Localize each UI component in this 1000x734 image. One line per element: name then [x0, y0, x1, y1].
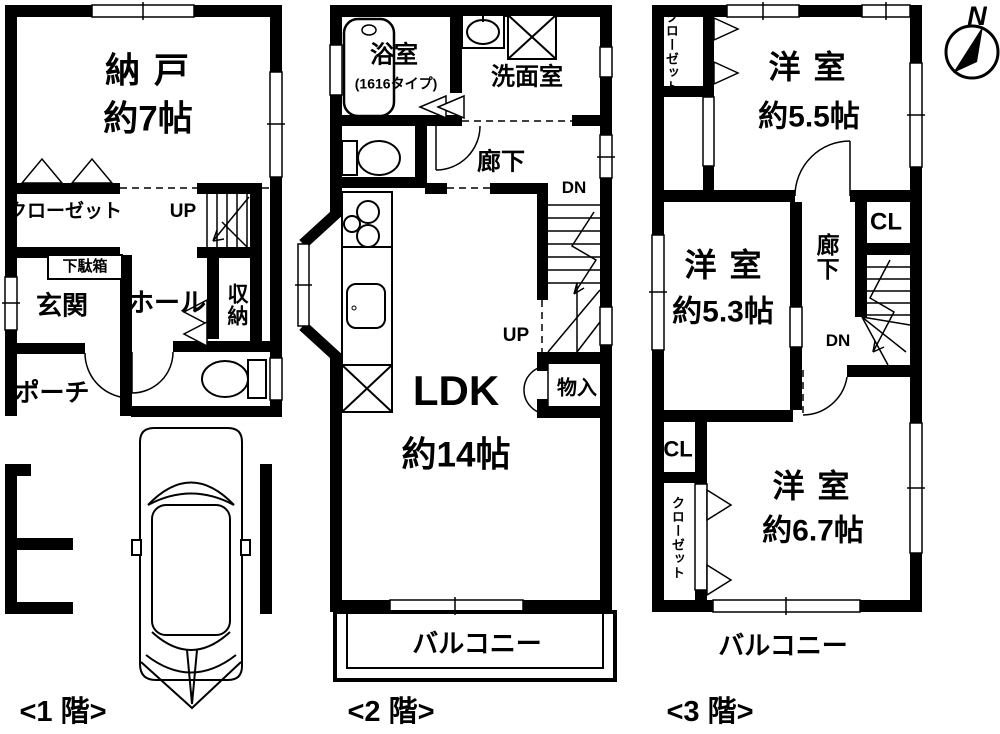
room-label-monoire: 物入	[557, 379, 597, 400]
room-label-ldk: LDK	[413, 369, 499, 413]
room-label-bath: 浴室	[370, 42, 418, 67]
toilet-icon-f1	[202, 360, 266, 398]
stairs-dn-label-f3: DN	[826, 332, 851, 350]
bay-window-f2	[295, 212, 338, 358]
room-label-hall: ホール	[128, 289, 206, 316]
room-label-yoshitsu3-size: 約6.7帖	[762, 515, 864, 547]
car-icon	[132, 428, 250, 708]
stairs-f1-icon	[207, 194, 250, 250]
room-label-yoshitsu2-size: 約5.3帖	[672, 296, 774, 328]
room-label-nando-size: 約7帖	[103, 102, 192, 139]
room-label-closet-f1: クローゼット	[8, 202, 122, 222]
room-label-hallway-f2: 廊下	[477, 149, 525, 174]
room-label-genkan: 玄関	[36, 292, 88, 319]
room-label-yoshitsu3: 洋 室	[773, 470, 852, 504]
stairs-f3-icon	[862, 260, 910, 365]
room-label-yoshitsu1-size: 約5.5帖	[758, 101, 860, 133]
room-label-washroom: 洗面室	[491, 64, 563, 89]
washroom-sink-icon	[462, 15, 504, 48]
room-label-yoshitsu2: 洋 室	[685, 249, 764, 283]
stairs-f2-icon	[548, 205, 600, 352]
stairs-dn-label-f2: DN	[562, 179, 587, 197]
kitchen-icon	[342, 192, 392, 412]
stairs-up-label-f2: UP	[503, 326, 529, 346]
floor2-label: <2 階>	[347, 697, 434, 727]
room-label-nando: 納 戸	[105, 54, 191, 91]
room-label-closet-f3-top: クローゼット	[664, 10, 678, 94]
room-label-hallway-f3: 廊下	[814, 233, 838, 281]
floor1-label: <1 階>	[19, 697, 106, 727]
stairs-up-label-f1: UP	[170, 202, 196, 222]
room-label-ldk-size: 約14帖	[402, 438, 511, 475]
room-label-closet-f3-bottom: クローゼット	[670, 496, 684, 580]
room-label-porch: ポーチ	[14, 380, 89, 406]
floor-plan: 納 戸 約7帖 クローゼット UP 下駄箱 玄関 ホール 収納 ポーチ <1 階…	[0, 0, 1000, 734]
room-label-getabako: 下駄箱	[62, 259, 107, 275]
room-label-yoshitsu1: 洋 室	[769, 51, 848, 85]
bath-folding-door-icon	[420, 96, 464, 118]
floor3-label: <3 階>	[666, 697, 753, 727]
compass-north-label: N	[967, 2, 987, 30]
room-label-balcony-f3: バルコニー	[718, 632, 847, 659]
room-label-bath-type: (1616タイプ)	[355, 77, 437, 92]
room-label-shuno: 収納	[225, 283, 247, 327]
room-label-cl-top: CL	[870, 209, 902, 234]
room-label-balcony-f2: バルコニー	[412, 630, 541, 657]
toilet-icon-f2	[342, 141, 400, 175]
compass-icon	[946, 26, 998, 78]
room-label-cl-mid: CL	[663, 437, 692, 460]
washing-machine-icon	[508, 15, 556, 59]
